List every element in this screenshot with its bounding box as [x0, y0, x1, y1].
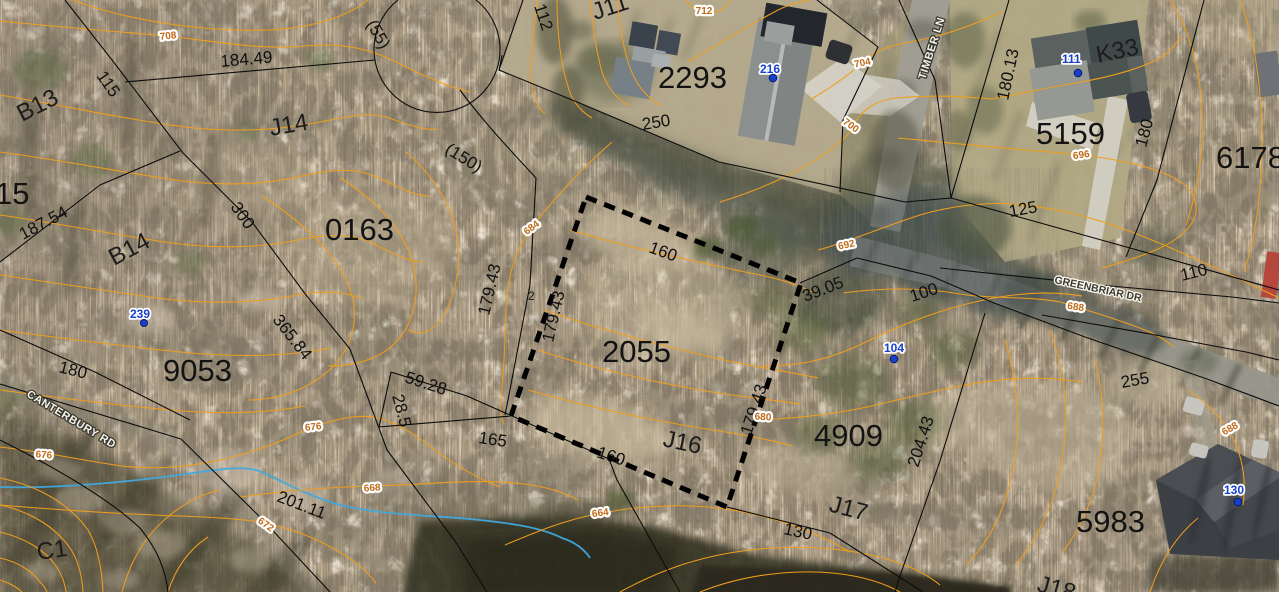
svg-text:2055: 2055	[602, 334, 671, 369]
svg-text:104: 104	[884, 341, 904, 355]
svg-text:6178: 6178	[1216, 140, 1279, 175]
svg-text:2293: 2293	[658, 60, 727, 95]
svg-text:0163: 0163	[325, 212, 394, 247]
svg-text:9053: 9053	[163, 353, 232, 388]
svg-text:676: 676	[35, 449, 53, 461]
svg-text:15: 15	[0, 176, 29, 211]
svg-text:668: 668	[363, 482, 381, 494]
svg-text:708: 708	[159, 30, 177, 43]
svg-text:130: 130	[1224, 483, 1244, 497]
svg-text:216: 216	[760, 62, 780, 76]
svg-text:239: 239	[130, 307, 150, 321]
svg-text:111: 111	[1062, 52, 1081, 66]
svg-text:C1: C1	[35, 535, 69, 566]
svg-text:2: 2	[528, 289, 535, 303]
svg-text:165: 165	[477, 428, 508, 451]
svg-text:5159: 5159	[1036, 116, 1105, 151]
svg-text:676: 676	[304, 421, 322, 434]
svg-text:4909: 4909	[814, 418, 883, 453]
svg-text:680: 680	[754, 412, 772, 424]
svg-text:5983: 5983	[1076, 504, 1145, 539]
svg-text:712: 712	[696, 6, 713, 17]
